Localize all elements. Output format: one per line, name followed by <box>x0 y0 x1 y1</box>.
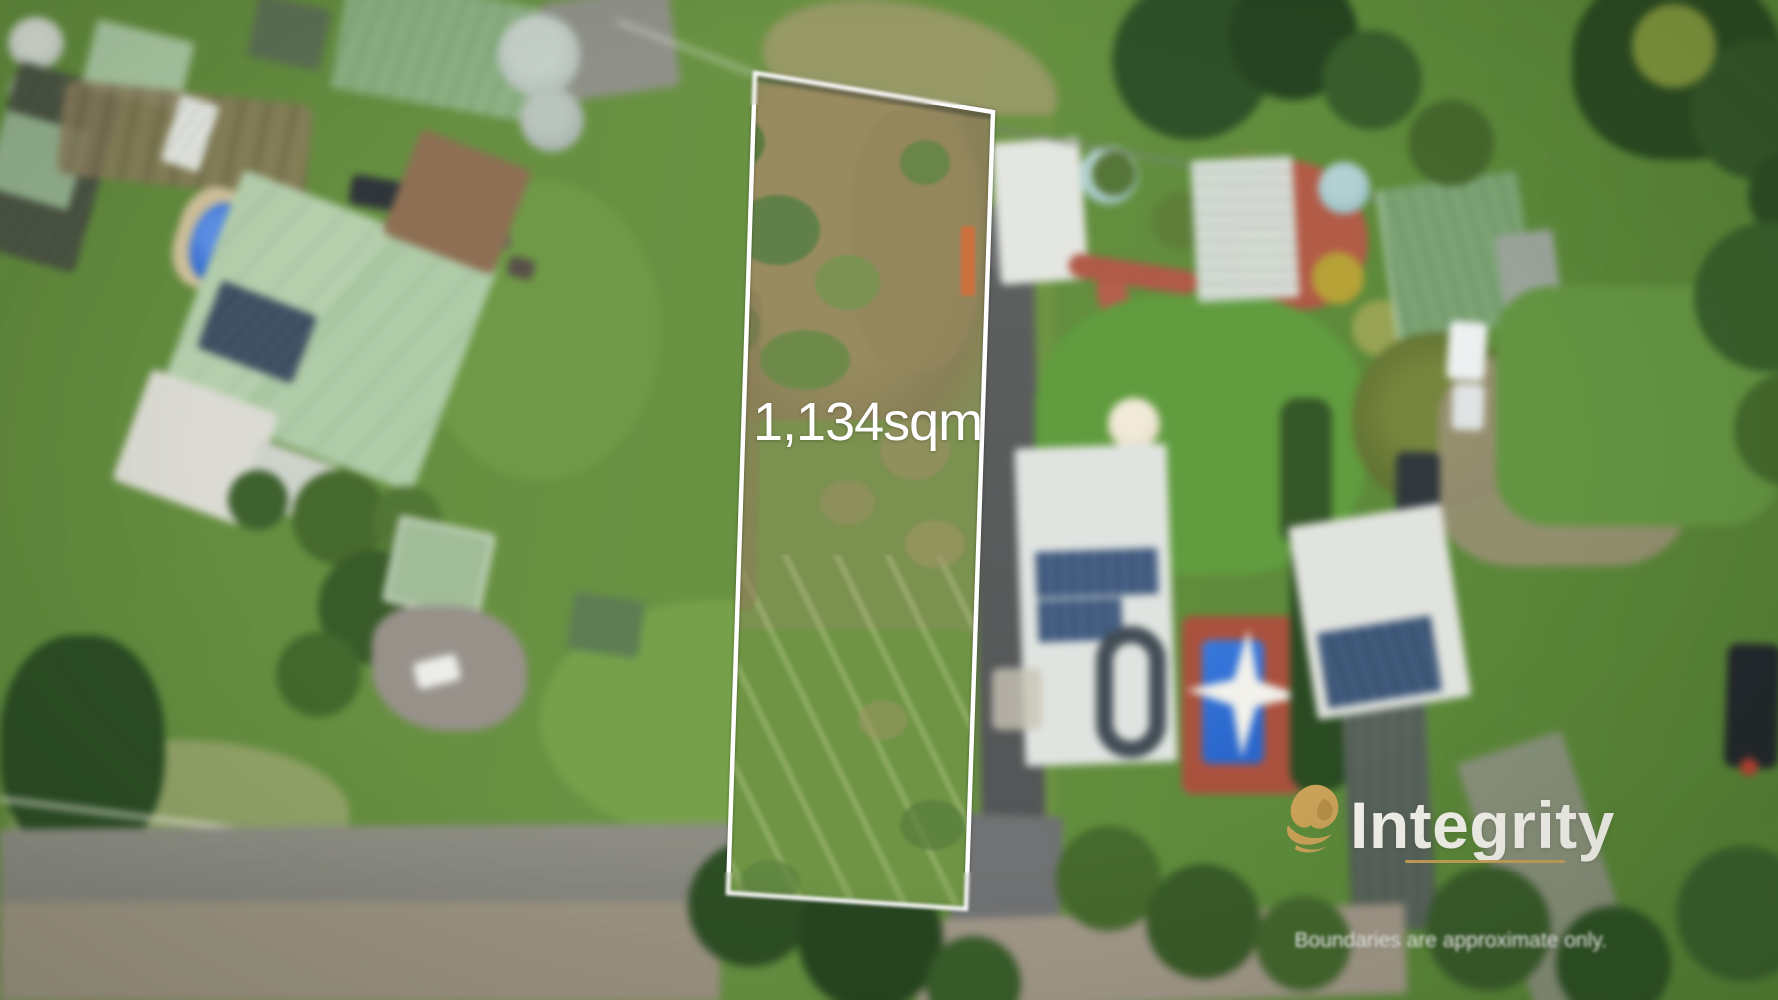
bush <box>1312 252 1364 304</box>
tree <box>276 632 361 717</box>
integrity-wordmark: Integrity <box>1350 787 1615 863</box>
aerial-photo: 1,134sqm Integrity Boundaries are approx… <box>0 0 1778 1000</box>
lot-scrub <box>900 800 965 850</box>
lot-scrub <box>900 140 950 185</box>
tree <box>228 470 288 530</box>
bin <box>1740 758 1758 776</box>
lot-area-label: 1,134sqm <box>753 391 982 453</box>
bush <box>1092 152 1136 196</box>
van <box>1446 321 1488 382</box>
solar-panels <box>1035 548 1159 598</box>
tree <box>1146 864 1261 979</box>
tree <box>1632 4 1716 88</box>
roof-courtyard-ring <box>1096 626 1166 758</box>
lot-scrub <box>815 255 880 310</box>
shipping-container <box>961 226 975 296</box>
boundaries-disclaimer: Boundaries are approximate only. <box>1295 929 1607 953</box>
gazebo-dome <box>1108 398 1160 450</box>
water-tank <box>498 14 580 96</box>
tree <box>0 635 165 860</box>
path-steps <box>992 668 1042 730</box>
lot-dirt-patch <box>858 700 908 740</box>
water-tank <box>1318 162 1370 214</box>
logo-underline <box>1405 860 1565 863</box>
tree <box>1322 30 1422 130</box>
van <box>1451 383 1485 430</box>
lot-dirt-patch <box>905 520 965 568</box>
car <box>1724 643 1778 769</box>
water-tank <box>8 17 64 69</box>
integrity-logo: Integrity <box>1283 781 1663 876</box>
tree <box>1408 100 1494 186</box>
greenhouse-roof <box>1190 155 1299 302</box>
lot-scrub <box>760 330 850 390</box>
integrity-lion-icon <box>1283 783 1345 855</box>
lot-dirt-patch <box>820 480 875 525</box>
gravel-shoulder <box>0 902 720 1000</box>
water-tank <box>520 88 584 152</box>
shed-roof <box>566 591 645 658</box>
